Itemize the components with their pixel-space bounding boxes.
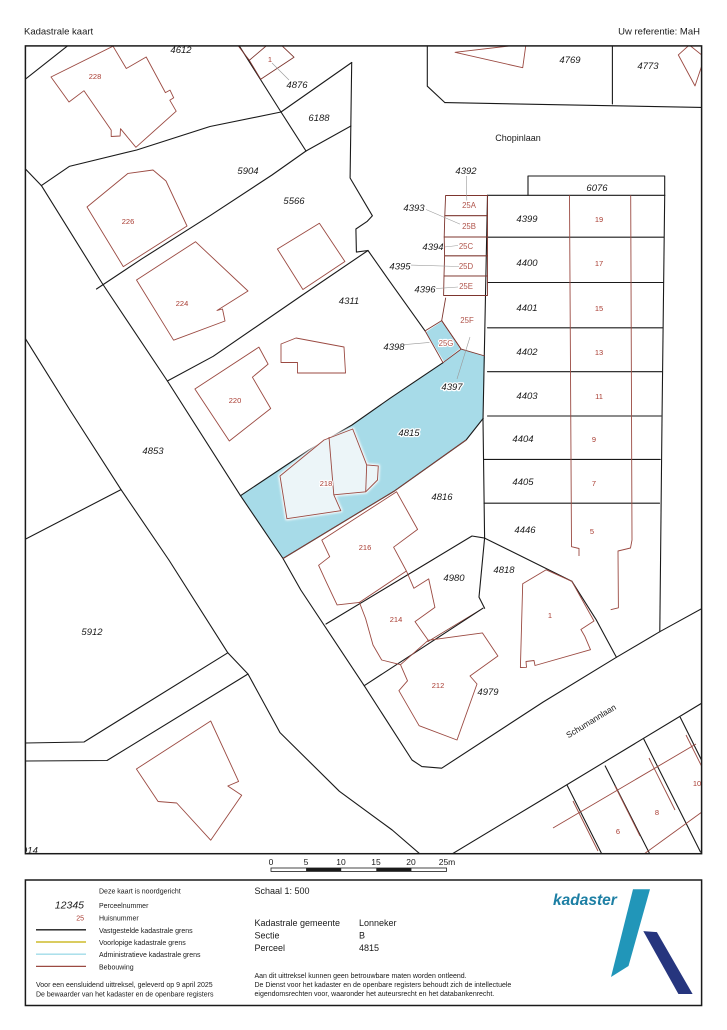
svg-text:4405: 4405 bbox=[512, 477, 534, 488]
svg-text:12345: 12345 bbox=[55, 900, 84, 912]
svg-text:Sectie: Sectie bbox=[255, 931, 280, 941]
svg-text:De bewaarder van het kadaster: De bewaarder van het kadaster en de open… bbox=[36, 992, 214, 999]
svg-text:4769: 4769 bbox=[559, 55, 581, 66]
svg-text:5912: 5912 bbox=[81, 627, 103, 638]
svg-text:6076: 6076 bbox=[586, 183, 608, 194]
svg-text:224: 224 bbox=[176, 299, 189, 308]
svg-text:25C: 25C bbox=[459, 242, 474, 251]
svg-text:228: 228 bbox=[89, 72, 102, 81]
svg-text:Chopinlaan: Chopinlaan bbox=[495, 133, 541, 143]
svg-text:eigendomsrechten voor, waarond: eigendomsrechten voor, waaronder het aut… bbox=[255, 991, 495, 998]
svg-text:10: 10 bbox=[693, 779, 701, 788]
svg-text:5904: 5904 bbox=[237, 166, 258, 177]
svg-text:Lonneker: Lonneker bbox=[359, 918, 397, 928]
svg-text:Vastgestelde kadastrale grens: Vastgestelde kadastrale grens bbox=[99, 928, 193, 935]
svg-text:25m: 25m bbox=[439, 857, 456, 867]
svg-text:216: 216 bbox=[359, 543, 372, 552]
svg-text:19: 19 bbox=[595, 215, 603, 224]
svg-text:25E: 25E bbox=[459, 282, 473, 291]
svg-text:4773: 4773 bbox=[637, 61, 659, 72]
svg-text:6188: 6188 bbox=[308, 113, 330, 124]
svg-text:4402: 4402 bbox=[516, 347, 538, 358]
svg-text:10: 10 bbox=[336, 857, 346, 867]
svg-text:1: 1 bbox=[268, 55, 272, 64]
svg-text:25A: 25A bbox=[462, 201, 477, 210]
svg-text:4815: 4815 bbox=[359, 943, 379, 953]
svg-text:13: 13 bbox=[595, 348, 603, 357]
svg-text:Bebouwing: Bebouwing bbox=[99, 964, 134, 971]
svg-text:Schaal 1: 500: Schaal 1: 500 bbox=[255, 886, 310, 896]
svg-text:4395: 4395 bbox=[389, 262, 411, 273]
svg-text:4979: 4979 bbox=[477, 687, 499, 698]
svg-text:4446: 4446 bbox=[514, 525, 536, 536]
svg-text:4404: 4404 bbox=[512, 434, 533, 445]
svg-text:4612: 4612 bbox=[170, 45, 192, 56]
svg-text:4396: 4396 bbox=[414, 285, 436, 296]
svg-text:Voor een eensluidend uittrekse: Voor een eensluidend uittreksel, gelever… bbox=[36, 982, 213, 989]
svg-text:Aan dit uittreksel kunnen geen: Aan dit uittreksel kunnen geen betrouwba… bbox=[255, 973, 467, 980]
svg-text:5: 5 bbox=[304, 857, 309, 867]
svg-text:4853: 4853 bbox=[142, 446, 164, 457]
svg-text:4818: 4818 bbox=[493, 565, 515, 576]
svg-text:17: 17 bbox=[595, 259, 603, 268]
svg-text:Administratieve kadastrale gre: Administratieve kadastrale grens bbox=[99, 952, 201, 959]
svg-text:25F: 25F bbox=[460, 316, 474, 325]
svg-text:212: 212 bbox=[432, 681, 445, 690]
svg-text:4815: 4815 bbox=[398, 428, 420, 439]
svg-text:15: 15 bbox=[371, 857, 381, 867]
svg-text:Uw referentie: MaH: Uw referentie: MaH bbox=[618, 27, 700, 38]
svg-text:4393: 4393 bbox=[403, 203, 425, 214]
svg-text:4394: 4394 bbox=[422, 242, 443, 253]
svg-text:4816: 4816 bbox=[431, 492, 453, 503]
svg-text:226: 226 bbox=[122, 217, 135, 226]
svg-text:Kadastrale gemeente: Kadastrale gemeente bbox=[255, 918, 341, 928]
svg-text:B: B bbox=[359, 931, 365, 941]
svg-text:Huisnummer: Huisnummer bbox=[99, 916, 139, 923]
svg-text:25G: 25G bbox=[439, 339, 454, 348]
svg-text:11: 11 bbox=[595, 392, 603, 401]
svg-text:4397: 4397 bbox=[441, 382, 463, 393]
svg-text:4980: 4980 bbox=[443, 573, 465, 584]
svg-text:4400: 4400 bbox=[516, 258, 538, 269]
svg-text:9: 9 bbox=[592, 435, 596, 444]
svg-text:0: 0 bbox=[269, 857, 274, 867]
svg-text:Voorlopige kadastrale grens: Voorlopige kadastrale grens bbox=[99, 940, 186, 947]
svg-text:De Dienst voor het kadaster en: De Dienst voor het kadaster en de openba… bbox=[255, 982, 512, 989]
svg-text:Kadastrale kaart: Kadastrale kaart bbox=[24, 27, 94, 38]
svg-text:4876: 4876 bbox=[286, 80, 308, 91]
svg-text:4311: 4311 bbox=[339, 296, 359, 307]
svg-text:218: 218 bbox=[320, 479, 333, 488]
svg-text:220: 220 bbox=[229, 396, 242, 405]
svg-text:4392: 4392 bbox=[455, 166, 477, 177]
svg-text:kadaster: kadaster bbox=[553, 892, 618, 909]
svg-text:4399: 4399 bbox=[516, 214, 538, 225]
svg-text:7: 7 bbox=[592, 479, 596, 488]
svg-text:5: 5 bbox=[590, 527, 594, 536]
svg-text:4398: 4398 bbox=[383, 342, 405, 353]
svg-text:Perceel: Perceel bbox=[255, 943, 286, 953]
svg-text:25: 25 bbox=[76, 916, 84, 923]
svg-text:Perceelnummer: Perceelnummer bbox=[99, 903, 149, 910]
svg-text:1: 1 bbox=[548, 611, 552, 620]
svg-text:15: 15 bbox=[595, 304, 603, 313]
svg-text:8: 8 bbox=[655, 808, 659, 817]
svg-text:25B: 25B bbox=[462, 222, 476, 231]
svg-text:20: 20 bbox=[406, 857, 416, 867]
svg-text:Deze kaart is noordgericht: Deze kaart is noordgericht bbox=[99, 889, 181, 896]
svg-text:6: 6 bbox=[616, 827, 620, 836]
svg-text:25D: 25D bbox=[459, 262, 474, 271]
svg-text:4403: 4403 bbox=[516, 391, 538, 402]
svg-text:214: 214 bbox=[390, 615, 403, 624]
svg-text:5566: 5566 bbox=[283, 196, 305, 207]
svg-text:4401: 4401 bbox=[516, 303, 537, 314]
